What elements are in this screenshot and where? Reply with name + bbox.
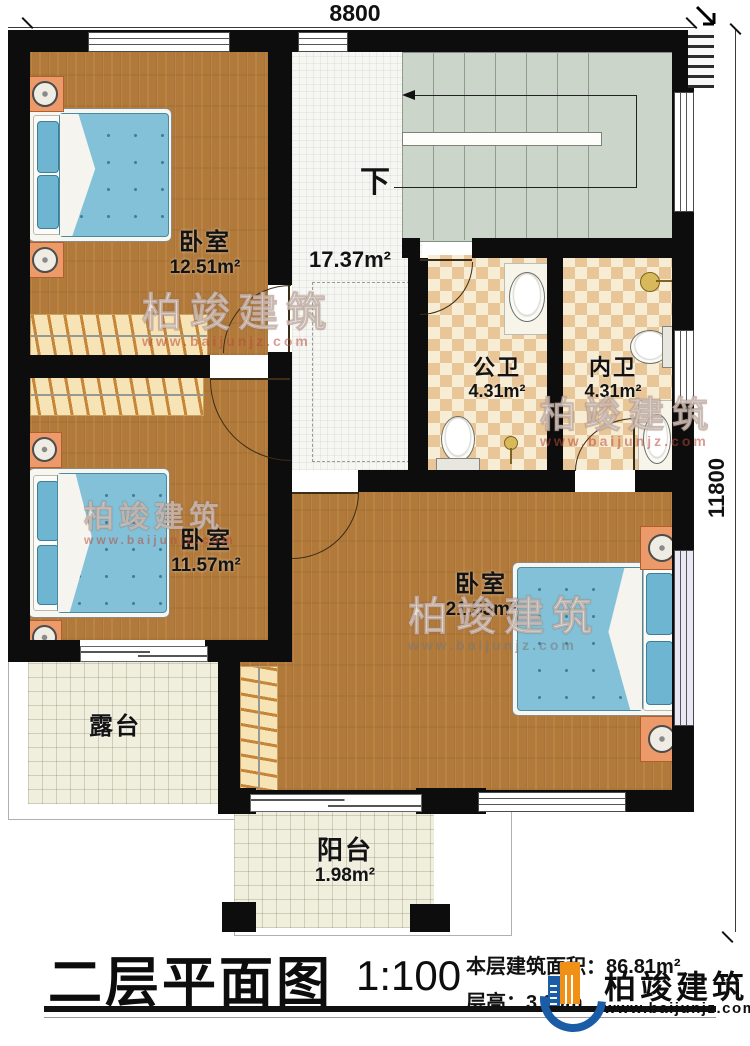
room-label-ensuite-bath: 内卫 4.31m² [568,356,658,401]
stair-direction-arrow-icon [402,90,415,100]
wall-bath-master [280,470,292,492]
stair-void-outline [312,282,420,462]
dimension-line-top [8,27,696,28]
room-area: 21.53m² [420,599,542,620]
door-leaf [292,492,358,494]
room-label-bedroom-mid: 卧室 11.57m² [148,528,264,576]
sliding-door [250,794,422,812]
nightstand [26,432,62,468]
bed [28,108,172,242]
lamp-icon [32,247,58,273]
shower-arm [656,280,672,282]
bed-pillow [646,573,673,635]
dimension-tick-icon [721,931,733,943]
bed-pillow [37,481,59,541]
room-name: 露台 [68,714,162,741]
room-label-bedroom-top: 卧室 12.51m² [150,230,260,278]
room-name: 阳台 [295,836,395,865]
nightstand [26,76,64,112]
window [674,550,694,726]
toilet-icon [441,416,475,462]
pillar [410,904,450,932]
bed-duvet-fold [60,114,104,236]
window [298,32,348,52]
staircase-handrail [402,132,602,146]
wardrobe [240,666,278,794]
stair-direction-line [414,95,636,96]
sink-icon [643,414,671,464]
window [674,330,694,404]
room-name: 卧室 [148,528,264,555]
sink-icon [509,272,545,322]
door-leaf [420,259,472,261]
wall-divider-hall [268,52,292,285]
bed-pillow [37,121,59,173]
wardrobe [30,374,204,416]
stair-down-label: 下 [356,166,396,200]
wall-bath-master [635,470,694,492]
wall-terrace [8,640,80,662]
door-leaf [633,418,635,470]
drawing-scale: 1:100 [356,952,461,1000]
wall-bedrooms [288,355,292,378]
staircase-steps [402,52,602,240]
room-name: 卧室 [420,572,542,599]
stair-down-text: 下 [356,166,396,200]
floor-height-label: 层高： [466,992,526,1014]
dimension-right: 11800 [704,428,732,548]
wall-under-stairs [472,238,694,258]
room-area: 1.98m² [295,865,395,886]
bed-duvet-fold [600,568,642,710]
corner-arrow-icon [694,4,722,32]
lamp-icon [32,81,58,107]
wall-bath-master [358,470,575,492]
bed-pillow [646,641,673,705]
room-label-terrace: 露台 [68,714,162,741]
room-area: 4.31m² [568,381,658,401]
room-name: 内卫 [568,356,658,381]
wall-under-stairs [402,238,420,258]
wall-between-baths [547,255,563,470]
room-area: 11.57m² [148,555,264,576]
bed-pillow [37,175,59,229]
window [478,792,626,812]
stair-direction-line [636,95,637,188]
window [674,92,694,212]
wardrobe [30,314,208,358]
shower-head-icon [640,272,660,292]
room-area: 4.31m² [450,381,544,401]
door-leaf [288,285,290,352]
dimension-line-right [735,30,736,932]
hall-area-label: 17.37m² [300,248,400,273]
brand-url: www.baijunjz.com [604,1000,750,1017]
bed-mattress [59,113,169,237]
bed-pillow [37,545,59,605]
lamp-icon [32,437,57,462]
room-area: 12.51m² [150,257,260,278]
dimension-top: 8800 [310,0,400,27]
title-rule-thin [44,1017,716,1018]
wall-terrace-side [218,653,240,808]
wall-bedrooms [8,355,210,378]
brand-logo-building-icon [560,962,580,1004]
room-area: 17.37m² [300,248,400,273]
bed-duvet-fold [58,474,100,612]
room-name: 卧室 [150,230,260,257]
pillar [222,902,256,932]
room-label-public-bath: 公卫 4.31m² [450,356,544,401]
sliding-door [80,646,208,662]
window [88,32,230,52]
nightstand [26,242,64,278]
floor-plan: 卧室 12.51m² 卧室 11.57m² 卧室 21.53m² 公卫 4.31… [0,0,750,1034]
flue-hatch [688,30,714,88]
brand-logo-tower-icon [548,976,560,1006]
pillar [416,788,486,814]
floor-drain-handle [510,448,512,464]
wall-left [8,30,30,662]
room-name: 公卫 [450,356,544,381]
room-label-bedroom-master: 卧室 21.53m² [420,572,542,620]
room-label-balcony: 阳台 1.98m² [295,836,395,886]
stair-direction-line [394,187,637,188]
door-leaf [210,378,290,380]
